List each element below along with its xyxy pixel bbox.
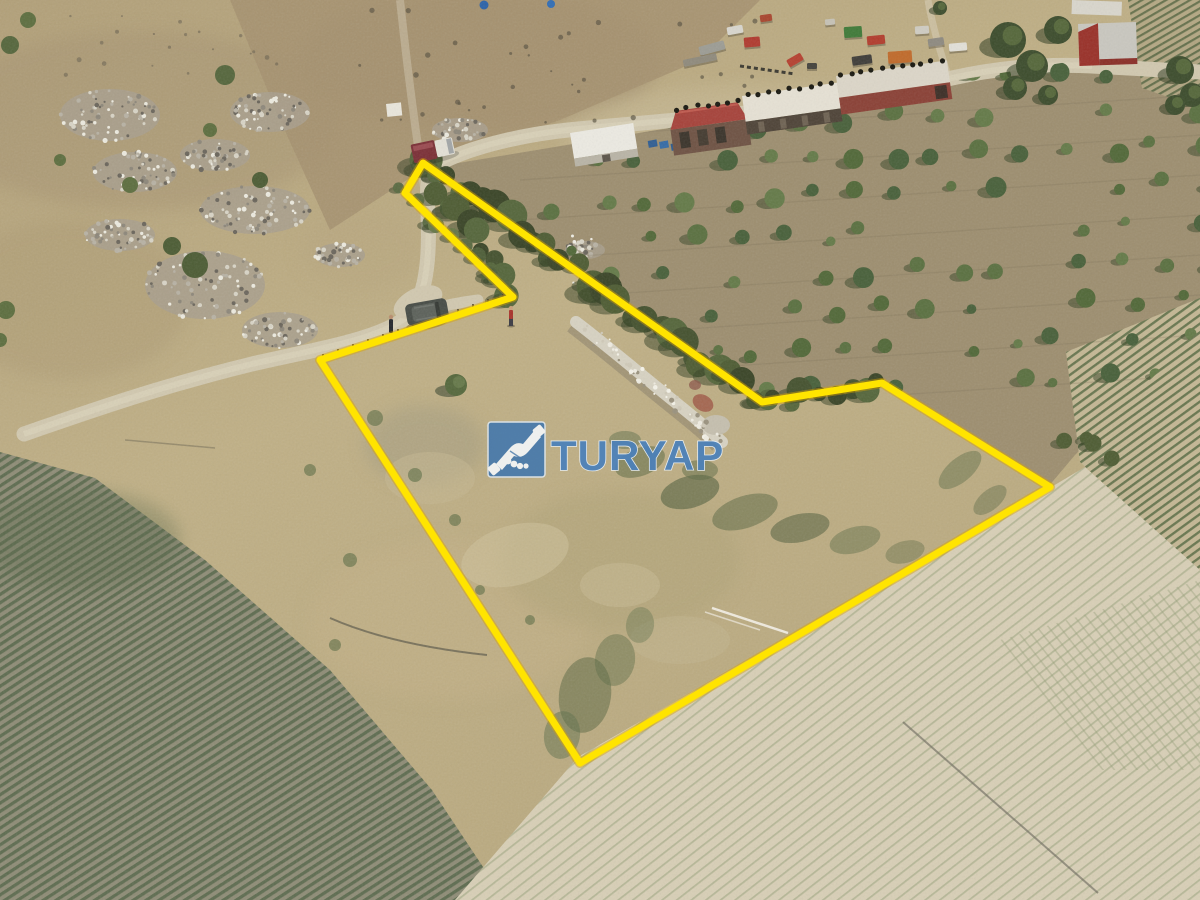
brand-text: TURYAP	[551, 432, 724, 479]
aerial-photo-scene: TURYAP	[0, 0, 1200, 900]
aerial-photo: TURYAP	[0, 0, 1200, 900]
